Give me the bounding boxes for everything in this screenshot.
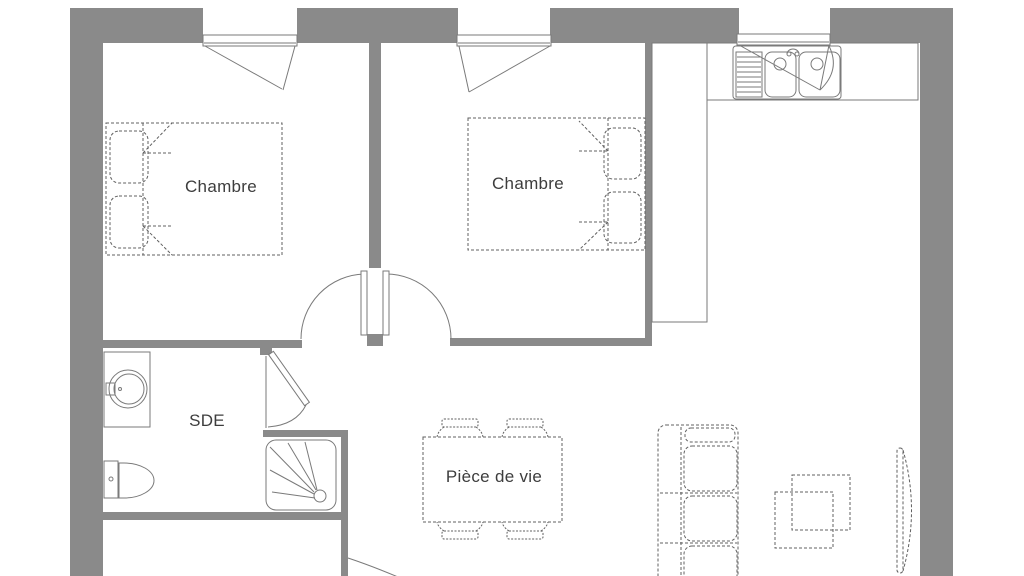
entry-door-arc (348, 558, 398, 576)
chair-icon (437, 522, 483, 539)
wall-bedroom-divider (369, 43, 381, 268)
pillow-icon (110, 196, 148, 248)
wall-top-segment-3 (550, 8, 739, 43)
washbasin-icon (104, 352, 150, 427)
bedroom1-door-icon (301, 271, 367, 339)
wall-bedroom-divider-stub (367, 334, 383, 346)
floor-plan-drawing (0, 0, 1024, 576)
chair-icon (502, 522, 548, 539)
bedroom2-door-leaf (383, 271, 389, 335)
wall-top-segment-2 (297, 8, 458, 43)
bathroom-door-icon (266, 351, 309, 428)
kitchen-sink-icon (733, 46, 841, 99)
bathroom-door-leaf (269, 351, 310, 405)
pillow-icon (604, 192, 641, 243)
wall-hall-right (341, 430, 348, 576)
room-label-bedroom-2: Chambre (478, 174, 578, 194)
living-furniture (423, 419, 912, 576)
floor-plan: Chambre Chambre SDE Pièce de vie (0, 0, 1024, 576)
pillow-icon (604, 128, 641, 179)
wall-bedroom2-kitchen (645, 43, 652, 345)
coffee-table-icon (775, 475, 850, 548)
chair-icon (502, 419, 548, 437)
room-label-living-room: Pièce de vie (434, 467, 554, 487)
wall-bedroom1-bottom (103, 340, 302, 348)
kitchen-tall-unit (652, 43, 707, 322)
wall-shower-top (263, 430, 348, 437)
bedroom2-door-icon (383, 271, 451, 339)
shower-icon (266, 440, 336, 510)
kitchen-fixtures (652, 43, 918, 322)
wall-sde-bottom (103, 512, 348, 520)
doors (266, 271, 451, 576)
wall-right (920, 8, 953, 576)
tv-icon (897, 448, 912, 573)
bedroom1-door-leaf (361, 271, 367, 335)
wall-bedroom2-bottom (450, 338, 652, 346)
bedroom1-window-icon (203, 35, 297, 90)
bedroom2-window-icon (457, 35, 551, 92)
sofa-icon (658, 425, 738, 576)
chair-icon (437, 419, 483, 437)
interior-walls (103, 43, 652, 576)
pillow-icon (110, 131, 148, 183)
room-label-shower-room: SDE (182, 411, 232, 431)
room-label-bedroom-1: Chambre (171, 177, 271, 197)
wall-left (70, 8, 103, 576)
toilet-icon (104, 461, 154, 498)
